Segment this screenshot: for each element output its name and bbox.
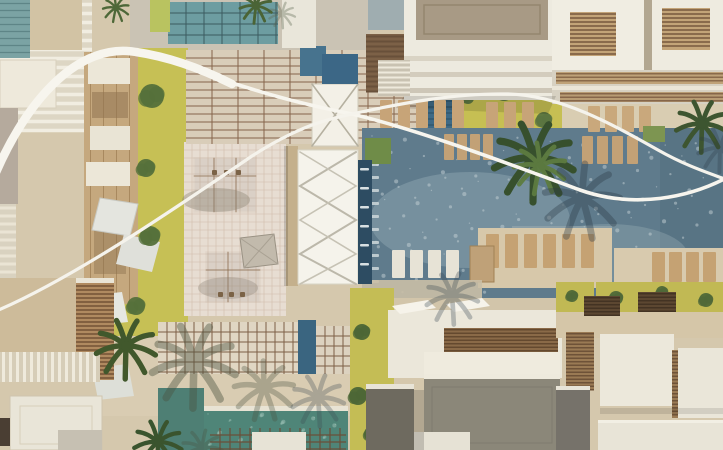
loungers-north-2 [504,102,516,128]
channel-ticks [360,206,369,209]
loungers-southwest-white [428,250,441,278]
walkway-southwest [0,352,100,382]
channel-ticks [360,187,369,190]
channel-ticks [360,244,369,247]
loungers-island [562,234,575,268]
loungers-pool-edge-1 [470,134,480,160]
canopy-wall-shadow [284,146,288,286]
loungers-island [505,234,518,268]
plaza-shadow-2 [198,277,258,299]
plaza-seating-1 [212,170,217,175]
white-roof-south [252,432,306,450]
roof-gray-east [556,390,590,450]
terrace-step-1 [404,56,558,61]
white-roof-west-3 [86,162,130,186]
building-east-a [600,334,674,406]
shadow-east [600,408,723,414]
gray-slab-southwest [58,430,102,450]
loungers-southeast [669,252,682,282]
loungers-southeast [652,252,665,282]
shadow-south-center [414,390,424,450]
plaza-seating-2 [218,292,223,297]
court-west-1 [92,92,128,118]
channel-ticks [360,168,369,171]
blue-panel-center [322,54,358,84]
pool-speckle [371,135,372,136]
loungers-north-1 [416,100,428,128]
loungers-island [543,234,556,268]
loungers-pool-edge-2 [627,136,638,164]
loungers-pool-edge-2 [582,136,593,164]
island-pavilion [470,246,494,282]
plaza-seating-2 [240,292,245,297]
loungers-southwest-white [392,250,405,278]
terrace-step-3 [404,88,558,93]
shadow-gap-northeast [644,0,652,72]
loungers-north-3 [622,106,634,132]
loungers-pool-edge-2 [612,136,623,164]
pergola-grid-south-b [316,326,350,374]
lawn-north-sliver [150,0,170,32]
beige-block-northwest [30,0,82,50]
planter-hedge-2 [643,126,665,142]
plaza-shadow-1 [182,188,250,212]
loungers-north-2 [486,102,498,128]
loungers-north-1 [452,100,464,128]
plaza-seating-2 [229,292,234,297]
white-band-east-edge [598,420,723,423]
loungers-southeast [703,252,716,282]
loungers-island [524,234,537,268]
roof-gray-east-parapet [556,386,590,390]
terrace-step-2 [404,72,558,77]
white-roof-west-2 [90,126,130,150]
loungers-pool-edge-1 [444,134,454,160]
lap-pool-sparkle [207,413,208,414]
loungers-north-1 [434,100,446,128]
building-east-b [678,348,723,418]
loungers-pool-edge-2 [597,136,608,164]
white-roof-west-1 [88,58,130,84]
blue-strip-south [298,320,316,374]
louvre-box-2 [638,292,676,312]
channel-ticks [360,263,369,266]
plaza-seating-1 [236,170,241,175]
render-canvas [0,0,723,450]
channel-ticks [360,225,369,228]
masterplan-aerial-render [0,0,723,450]
white-band-east-south [598,422,723,450]
roof-gray-a-parapet [424,374,560,379]
white-block-north [282,0,316,48]
dark-doorway [0,418,10,446]
loungers-southwest-white [410,250,423,278]
louvre-box-1 [584,296,620,316]
shade-sail-1 [92,198,138,236]
louvre-tower-cap [76,278,114,283]
roof-dark-parapet [366,384,414,389]
loungers-southeast [686,252,699,282]
teal-roof-corner [0,0,30,58]
roof-dark [366,389,414,450]
terrace-edge [552,86,723,90]
